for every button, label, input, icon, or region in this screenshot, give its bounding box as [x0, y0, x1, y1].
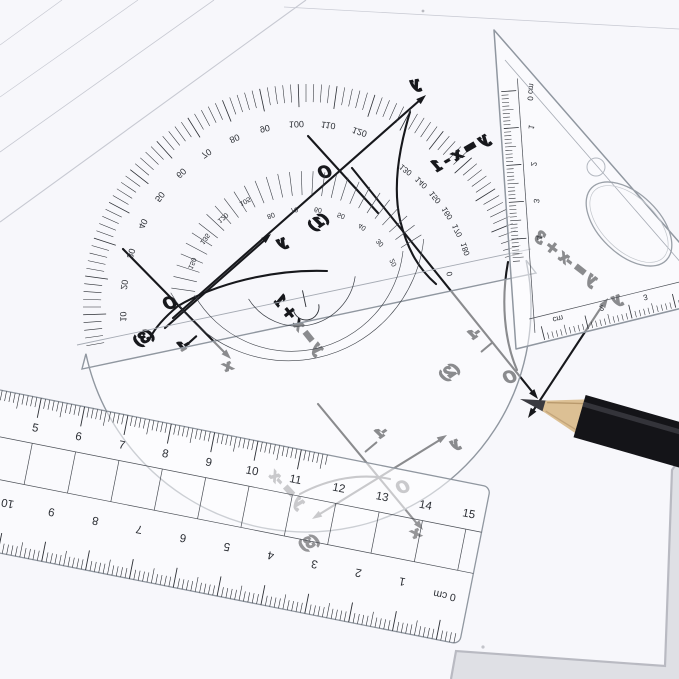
protractor-number-outer: 100	[289, 119, 305, 130]
ruler-number-top: 10	[245, 464, 260, 478]
protractor-number-outer: 110	[321, 120, 336, 132]
ruler-number-top: 13	[375, 490, 390, 504]
set-square-number: 0 cm	[525, 83, 536, 102]
ruler-number-bottom: 10	[0, 496, 15, 510]
photo-canvas: yOy = x - 1(1)xyO-1y = x + 1(3)-1yOy = -…	[0, 0, 679, 679]
dust-speck	[481, 645, 484, 648]
protractor-number-outer: 10	[118, 311, 129, 322]
photo-scene: yOy = x - 1(1)xyO-1y = x + 1(3)-1yOy = -…	[0, 0, 679, 679]
ruler-number-top: 12	[331, 482, 346, 496]
dust-speck	[422, 10, 425, 13]
ruler-number-top: 15	[461, 507, 476, 521]
protractor-number-inner: 60	[314, 205, 323, 213]
ruler-number-top: 11	[288, 473, 302, 487]
protractor-number-inner: 70	[290, 205, 299, 213]
protractor-number-outer: 20	[119, 279, 130, 290]
